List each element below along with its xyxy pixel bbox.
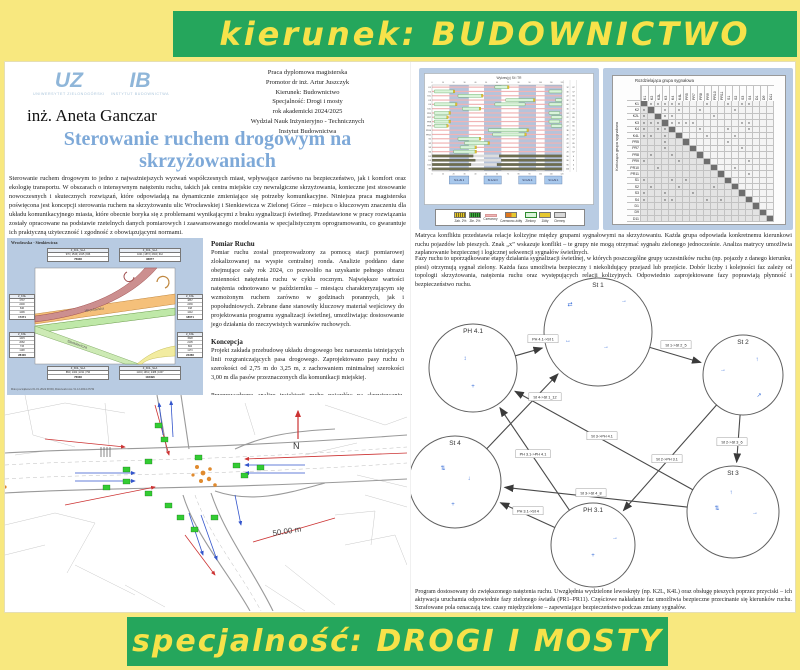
matrix-col-header: K2 [648,85,655,101]
svg-text:110: 110 [550,174,553,176]
edge-label: St 3->St 4_8 [580,491,601,495]
phase-node-label: St 4 [449,440,461,447]
svg-text:57: 57 [572,134,574,136]
phase-node-label: St 1 [592,282,604,289]
phase-edge [500,503,554,528]
svg-text:30: 30 [566,91,568,93]
legend-item: Zie. 2% [469,212,481,223]
meta-line: rok akademicki 2024/2025 [215,107,400,117]
matrix-cell [704,216,711,222]
svg-text:65: 65 [572,126,574,128]
section-body: Projekt zakłada przebudowę układu drogow… [211,347,404,383]
bottom-banner: specjalność: DROGI I MOSTY [127,617,668,666]
svg-text:67: 67 [572,87,574,89]
matrix-cell [732,216,739,222]
legend-swatch [539,212,551,218]
program-caption: Program dostosowany do zwiększonego natę… [415,588,792,612]
svg-text:57: 57 [572,91,574,93]
timing-chart-panel: Wykres(y) St i TR00101020203030404050506… [419,68,599,230]
edge-label: St 1->St 2_5 [665,343,686,347]
svg-text:40: 40 [474,174,476,176]
matrix-col-header: K2L [655,85,662,101]
matrix-cell [760,216,767,222]
svg-text:120: 120 [561,174,564,176]
edge-label: PH 4.1->St 1 [532,337,554,341]
text-section: KoncepcjaProjekt zakłada przebudowę ukła… [211,338,404,383]
svg-text:PR10: PR10 [426,130,432,132]
signal-group-icon: → [720,367,726,373]
legend-swatch [469,212,481,218]
section-heading: Koncepcja [211,338,404,346]
meta-line: Specjalność: Drogi i mosty [215,97,400,107]
measurement-table: Z_KNL17372400846129617371 [9,294,35,320]
matrix-col-header: D9 [760,85,767,101]
left-column: UZ UNIWERSYTET ZIELONOGÓRSKI IB INSTYTUT… [5,62,410,612]
legend-swatch [525,212,537,218]
legend-label: Czerwony [483,217,497,221]
svg-text:27: 27 [572,104,574,106]
phase-node [703,335,783,415]
phase-node [429,324,517,412]
meta-line: Kierunek: Budownictwo [215,88,400,98]
flow-box-title: Wrocławska - Sienkiewicza [11,240,58,245]
svg-text:14: 14 [566,147,568,149]
svg-text:St 1+St 2: St 1+St 2 [454,179,465,182]
matrix-cell [697,216,704,222]
svg-text:22: 22 [566,143,568,145]
ib-logo: IB INSTYTUT BUDOWNICTWA [111,70,169,96]
flow-box-footer: Data początkowa 01.01.2024 00:00, Data k… [11,387,94,391]
legend-label: Czerwono-żółty [500,219,522,223]
legend-item: Czerwono-żółty [500,212,522,223]
signal-group-icon: ↑ [730,490,733,496]
legend-item: Żółty [539,212,551,223]
svg-text:90: 90 [529,174,531,176]
ib-logo-abbr: IB [111,70,169,91]
svg-text:St 3+St 4: St 3+St 4 [522,179,533,182]
svg-text:51: 51 [572,130,574,132]
flow-measurement-box: Wrocławska Sienkiewicza Wrocławska - Sie… [7,238,203,395]
svg-text:67: 67 [572,151,574,153]
svg-text:96: 96 [566,156,568,158]
legend-swatch [554,212,566,218]
top-banner-label: kierunek: BUDOWNICTWO [219,15,750,53]
north-label: N [293,441,300,451]
signal-group-icon: + [591,553,595,559]
signal-group-icon: → [752,510,758,516]
phase-node [544,278,652,386]
measurement-table: Z_KNL14152082733110828400 [9,332,35,358]
poster-page: kierunek: BUDOWNICTWO UZ UNIWERSYTET ZIE… [0,0,800,670]
svg-text:120: 120 [566,169,569,171]
uz-logo-abbr: UZ [33,70,105,91]
svg-text:32: 32 [566,100,568,102]
measurement-table-sum: 76036 [48,375,108,379]
svg-text:67: 67 [572,139,574,141]
svg-text:Wykres(y) St i TR: Wykres(y) St i TR [497,76,523,80]
phase-edge [515,348,542,356]
svg-text:120: 120 [561,82,564,84]
signal-group-icon: ↓ [468,476,471,482]
thesis-meta: Praca dyplomowa magisterskaPromotor dr i… [215,68,400,136]
measurement-table-sum: 96877 [120,257,180,261]
svg-text:0: 0 [432,174,433,176]
legend-label: Zielony [525,219,535,223]
phase-node-label: St 2 [737,339,749,346]
matrix-cell [690,216,697,222]
svg-text:30: 30 [464,82,466,84]
svg-text:0: 0 [573,156,574,158]
svg-text:96: 96 [566,160,568,162]
phase-node-label: St 3 [727,470,739,477]
legend-swatch [505,212,517,218]
svg-text:60: 60 [566,104,568,106]
logos: UZ UNIWERSYTET ZIELONOGÓRSKI IB INSTYTUT… [33,70,169,96]
svg-text:10: 10 [442,174,444,176]
measurement-table-sum: 18671 [178,315,202,319]
svg-text:71: 71 [572,108,574,110]
matrix-cell [767,216,774,222]
legend-swatch [454,212,466,218]
matrix-col-header: S3 [739,85,746,101]
matrix-col-header: S2 [732,85,739,101]
svg-text:55: 55 [572,100,574,102]
svg-text:100: 100 [539,174,542,176]
measurement-table-sum: 17371 [10,315,34,319]
matrix-col-header: PR8 [697,85,704,101]
svg-text:24: 24 [566,113,568,115]
svg-text:40: 40 [474,82,476,84]
measurement-table: Z_KNL_SLA1021 | 1873 | 2304 | 91296877 [119,248,181,262]
svg-text:63: 63 [572,96,574,98]
measurement-table: Z_KNL18672436918124218671 [177,294,203,320]
svg-text:10: 10 [442,82,444,84]
measurement-table: Z_KNL15282105804117324366 [177,332,203,358]
signal-group-icon: → [603,344,609,350]
phase-node-label: PH 4.1 [463,328,483,335]
poster-title: Sterowanie ruchem drogowym na skrzyżowan… [15,128,400,173]
signal-group-icon: ⇄ [567,301,572,308]
svg-text:22: 22 [566,126,568,128]
legend-label: Zie. 2% [470,219,481,223]
svg-text:22: 22 [566,117,568,119]
matrix-col-header: K4L [676,85,683,101]
section-body: Pomiar ruchu został przeprowadzony za po… [211,249,404,329]
svg-text:0: 0 [573,169,574,171]
uz-logo: UZ UNIWERSYTET ZIELONOGÓRSKI [33,70,105,96]
meta-line: Promotor dr inż. Artur Juszczyk [215,78,400,88]
edge-label: St 4->St 1_12 [533,395,556,399]
matrix-cell [739,216,746,222]
phase-edge [515,391,693,489]
svg-text:22: 22 [566,96,568,98]
matrix-col-header: K4 [669,85,676,101]
svg-text:20: 20 [453,82,455,84]
edge-label: St 2->St 3_6 [721,440,742,444]
measurement-table-sum: 102496 [120,375,180,379]
matrix-col-header: K3 [662,85,669,101]
svg-text:0: 0 [573,160,574,162]
measurement-table-sum: 24366 [178,353,202,357]
svg-text:20: 20 [566,151,568,153]
svg-text:St 4+St 1: St 4+St 1 [548,179,559,182]
top-banner: kierunek: BUDOWNICTWO [173,11,797,57]
svg-text:0: 0 [432,82,433,84]
phase-node [687,466,779,558]
signal-group-icon: + [471,384,475,390]
matrix-col-header: PR10 [711,85,718,101]
legend-item: Zab. 2% [454,212,466,223]
matrix-col-header: K1 [641,85,648,101]
signal-group-icon: ⇅ [440,466,445,472]
phase-edge [500,408,569,511]
timing-chart: Wykres(y) St i TR00101020203030404050506… [424,73,594,205]
phase-transition-diagram: St 1⇄→↔→PH 4.1+↕St 2→↑↗St 4⇅+↓PH 3.1+→St… [411,270,793,588]
svg-text:80: 80 [518,174,520,176]
matrix-col-axis-label: Rozdzielająca grupa sygnałowa [635,78,694,83]
svg-text:110: 110 [550,82,553,84]
legend-item: Ciemny [554,212,566,223]
poster-sheet: UZ UNIWERSYTET ZIELONOGÓRSKI IB INSTYTUT… [5,62,795,612]
svg-text:20: 20 [453,174,455,176]
matrix-cell [648,216,655,222]
svg-text:65: 65 [572,117,574,119]
svg-text:50: 50 [485,174,487,176]
matrix-col-header: S4 [746,85,753,101]
measurement-table-sum: 28400 [10,353,34,357]
matrix-corner [627,85,641,101]
signal-group-icon: ↑ [756,357,759,363]
matrix-row-axis-label: Kończąca grupa sygnałowa [614,122,619,171]
right-column: Wykres(y) St i TR00101020203030404050506… [410,62,796,612]
legend-label: Ciemny [554,219,565,223]
matrix-col-header: D11 [767,85,774,101]
svg-text:30: 30 [566,134,568,136]
meta-line: Wydział Nauk Inżynieryjno - Technicznych [215,117,400,127]
svg-text:36: 36 [566,130,568,132]
meta-line: Praca dyplomowa magisterska [215,68,400,78]
measurement-table: Z_KNL_SLA884 | 1402 | 2211 | 79076036 [47,366,109,380]
site-plan-map: N 50.00 m [5,395,407,611]
phase-edge [650,347,701,362]
text-section: Pomiar RuchuPomiar ruchu został przeprow… [211,240,404,329]
conflict-matrix: Rozdzielająca grupa sygnałowa Kończąca g… [612,75,786,225]
edge-label: PH 3.1->St 4 [517,509,539,513]
svg-text:70: 70 [507,174,509,176]
signal-group-icon: → [621,298,627,304]
matrix-cell [669,216,676,222]
matrix-cell [718,216,725,222]
svg-text:30: 30 [464,174,466,176]
svg-text:St 2+St 3: St 2+St 3 [488,179,499,182]
svg-text:100: 100 [539,82,542,84]
svg-text:65: 65 [572,143,574,145]
svg-text:80: 80 [518,82,520,84]
svg-text:70: 70 [507,82,509,84]
svg-text:63: 63 [572,121,574,123]
matrix-col-header: PR5 [683,85,690,101]
section-heading: Pomiar Ruchu [211,240,404,248]
svg-text:73: 73 [572,147,574,149]
phase-node [551,503,635,587]
svg-text:12: 12 [566,87,568,89]
matrix-cell [641,216,648,222]
edge-label: St 2->PH 3.1 [656,457,678,461]
bottom-banner-label: specjalność: DROGI I MOSTY [132,624,663,659]
svg-text:20: 20 [566,139,568,141]
svg-text:60: 60 [496,174,498,176]
matrix-cell [662,216,669,222]
author-name: inż. Aneta Ganczar [27,106,157,126]
matrix-cell [711,216,718,222]
matrix-cell [746,216,753,222]
conflict-matrix-panel: Rozdzielająca grupa sygnałowa Kończąca g… [603,68,793,230]
svg-text:63: 63 [572,113,574,115]
matrix-col-header: D1 [753,85,760,101]
svg-text:60: 60 [496,82,498,84]
matrix-row-label: D11 [627,216,641,222]
signal-group-icon: ↗ [756,393,761,399]
svg-text:90: 90 [529,82,531,84]
svg-text:96: 96 [566,164,568,166]
phase-node-label: PH 3.1 [583,507,603,514]
measurement-table: Z_KNL_SLA970 | 1546 | 2415 | 84676936 [47,248,109,262]
signal-group-icon: → [612,535,618,541]
svg-text:16: 16 [566,108,568,110]
signal-group-icon: + [451,502,455,508]
edge-label: St 3->PH 4.1 [591,434,613,438]
matrix-col-header: PR9 [704,85,711,101]
matrix-col-header: PR11 [718,85,725,101]
phase-node [411,436,501,528]
legend-item: Zielony [525,212,537,223]
legend-swatch [485,214,497,217]
measurement-table: Z_KNL_SLA1104 | 1961 | 2488 | 1007102496 [119,366,181,380]
ib-logo-name: INSTYTUT BUDOWNICTWA [111,92,169,96]
svg-text:0: 0 [573,164,574,166]
signal-group-icon: ↔ [565,338,571,344]
matrix-cell [683,216,690,222]
matrix-col-header: S1 [725,85,732,101]
legend-label: Żółty [542,219,549,223]
timing-legend: Zab. 2%Zie. 2%CzerwonyCzerwono-żółtyZiel… [435,209,585,226]
signal-group-icon: ⇅ [714,506,719,512]
edge-label: PH 3.1->PH 4.1 [520,452,547,456]
legend-item: Czerwony [483,214,497,222]
matrix-cell [655,216,662,222]
matrix-col-header: PR7 [690,85,697,101]
matrix-grid: K1K2K2LK3K4K4LPR5PR7PR8PR9PR10PR11S1S2S3… [627,85,774,222]
svg-text:50: 50 [485,82,487,84]
measurement-table-sum: 76936 [48,257,108,261]
svg-text:24: 24 [566,121,568,123]
intro-paragraph: Sterowanie ruchem drogowym to jedno z na… [9,175,406,238]
legend-label: Zab. 2% [454,219,466,223]
matrix-cell [676,216,683,222]
signal-group-icon: ↕ [464,356,467,362]
matrix-cell [753,216,760,222]
matrix-cell [725,216,732,222]
uz-logo-name: UNIWERSYTET ZIELONOGÓRSKI [33,92,105,96]
